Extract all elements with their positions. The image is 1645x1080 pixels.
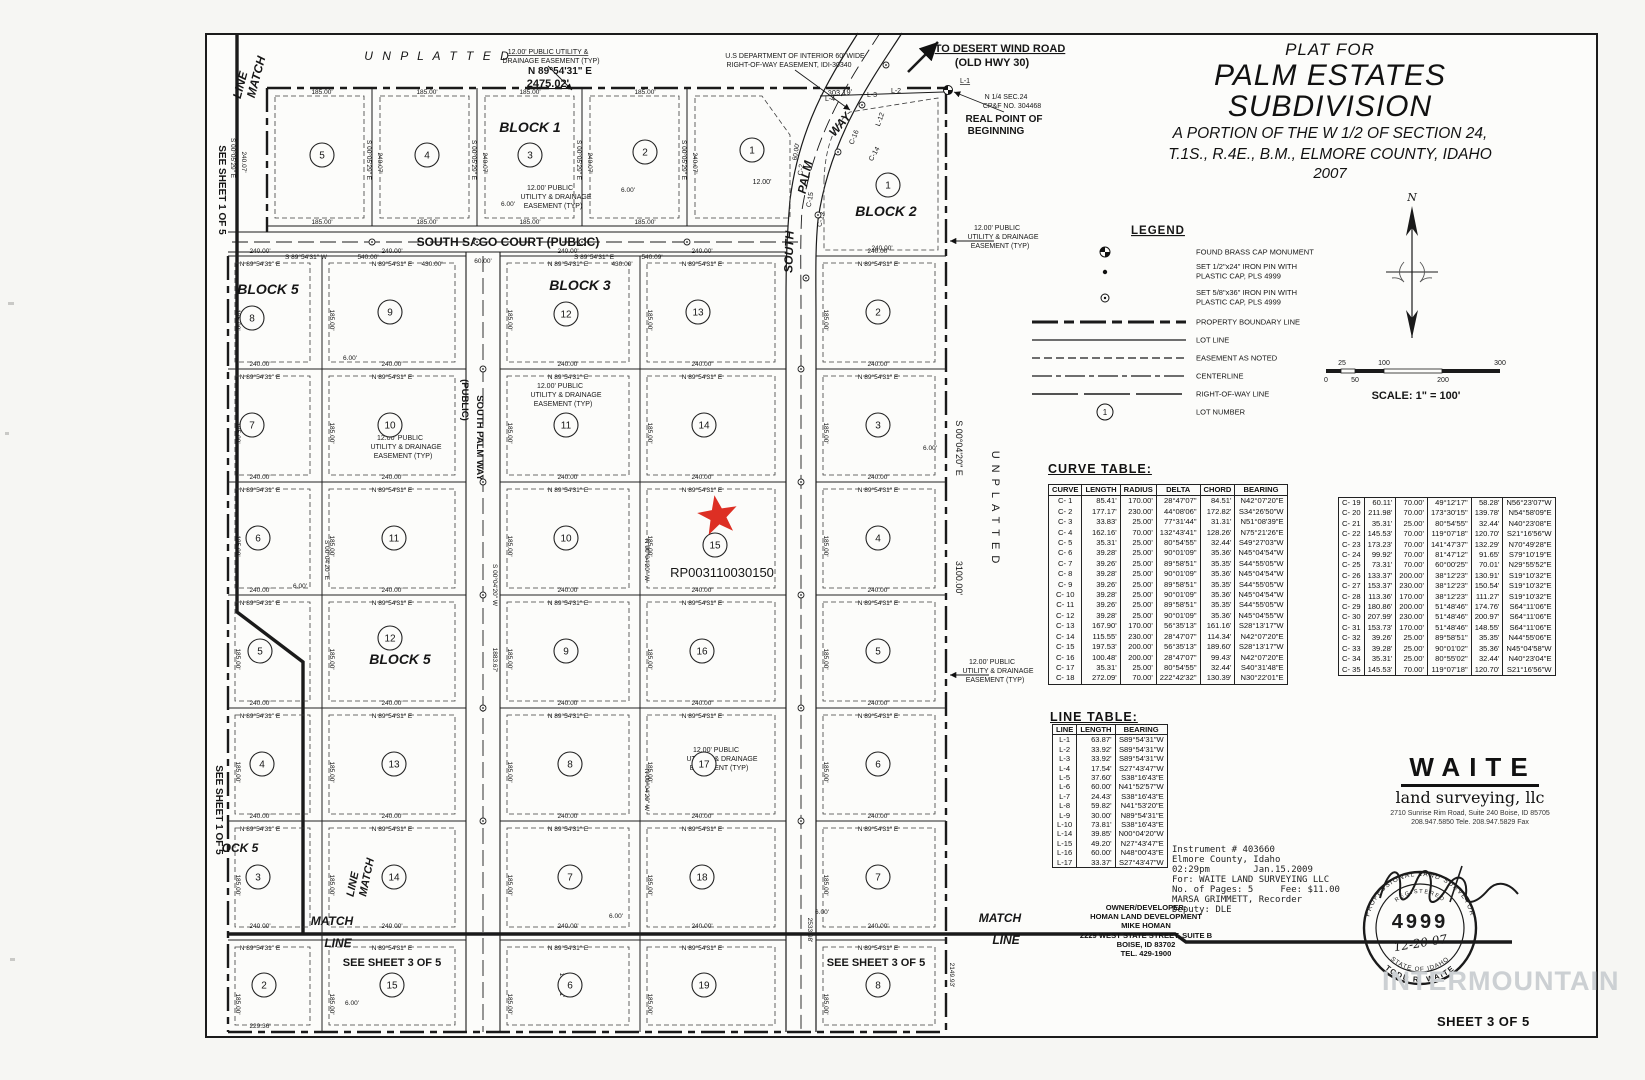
table-cell: 148.55' [1471,623,1503,633]
dimension-label: 240.07' [481,152,488,173]
table-cell: 174.76' [1471,602,1503,612]
table-cell: 38°12'23" [1427,581,1471,591]
table-cell: L-9 [1053,811,1077,820]
table-cell: 211.98' [1364,508,1396,518]
lot-number: 3 [527,151,533,162]
lot-number: 7 [875,873,881,884]
table-cell: 60.11' [1364,498,1396,509]
legend-label: RIGHT-OF-WAY LINE [1196,390,1269,399]
iron-pin-icon [861,104,863,106]
table-cell: S19°10'32"E [1503,592,1555,602]
lot-number: 10 [560,534,572,545]
table-cell: 189.60' [1200,642,1235,652]
column-header: BEARING [1235,485,1287,496]
table-cell: 230.00' [1120,507,1156,517]
lot-number: 6 [567,981,573,992]
table-cell: L-7 [1053,792,1077,801]
lot-number: 10 [384,421,396,432]
table-cell: 25.00' [1396,654,1428,664]
table-cell: 170.00' [1120,496,1156,507]
map-label: S 89°54'31" W [285,253,328,261]
table-cell: 56°35'13" [1156,642,1200,652]
subdivision-name-line1: PALM ESTATES [1095,60,1565,91]
table-cell: L-8 [1053,801,1077,810]
table-row: C- 27153.37'230.00'38°12'23"150.54'S19°1… [1339,581,1556,591]
stamp-date: 12-20-07 [1393,932,1449,954]
table-row: C- 3435.31'25.00'80°55'02"32.44'N40°23'0… [1339,654,1556,664]
table-cell: 222°42'32" [1156,673,1200,684]
table-row: C- 18272.09'70.00'222°42'32"130.39'N30°2… [1049,673,1288,684]
recording-line: For: WAITE LAND SURVEYING LLC [1172,875,1340,885]
table-cell: 33.92' [1077,754,1115,763]
table-cell: S89°54'31"W [1115,735,1167,745]
table-cell: N48°00'43"E [1115,848,1167,857]
table-cell: C- 2 [1049,507,1082,517]
map-label: SOUTH PALM WAY [474,395,485,481]
table-row: C- 333.83'25.00'77°31'44"31.31'N51°08'39… [1049,517,1288,527]
map-label: 430.00' [421,261,442,268]
table-cell: 145.53' [1364,665,1396,676]
dimension-label: 185.00' [416,219,437,226]
table-cell: 114.34' [1200,632,1235,642]
column-header: LENGTH [1082,485,1120,496]
table-cell: S38°16'43"E [1115,820,1167,829]
column-header: CURVE [1049,485,1082,496]
map-label: EASEMENT (TYP) [971,243,1030,250]
table-cell: 73.81' [1077,820,1115,829]
bearing-label: N 89°54'31" E [858,825,899,833]
table-cell: N44°55'06"E [1503,633,1555,643]
table-cell: 39.26' [1364,633,1396,643]
table-cell: 39.28' [1364,644,1396,654]
map-label: EASEMENT (TYP) [966,677,1025,684]
map-label: UTILITY & DRAINAGE [520,194,591,201]
table-row: L-660.00'N41°52'57"W [1053,782,1168,791]
map-label: 540.09' [641,254,662,261]
table-cell: S28°13'17"W [1235,621,1287,631]
table-cell: L-6 [1053,782,1077,791]
table-cell: L-15 [1053,839,1077,848]
table-cell: 25.00' [1120,611,1156,621]
lot-number: 12 [560,310,572,321]
table-cell: 89°58'51" [1156,580,1200,590]
table-cell: 33.37' [1077,858,1115,868]
map-label: (PUBLIC) [459,379,470,421]
map-label: S 89°54'31" E [574,253,615,261]
table-cell: N45°04'55"W [1235,611,1287,621]
table-row: L-417.54'S27°43'47"W [1053,764,1168,773]
bearing-label: N 89°54'31" E [240,486,281,494]
table-row: L-859.82'N41°53'20"E [1053,801,1168,810]
iron-pin-icon [885,64,887,66]
table-row: L-1733.37'S27°43'47"W [1053,858,1168,868]
dimension-label: 240.00' [249,700,270,707]
table-cell: 51°48'46" [1427,623,1471,633]
table-cell: 200.00' [1396,602,1428,612]
map-label: SEE SHEET 1 OF 5 [216,145,227,235]
table-cell: 39.26' [1082,559,1120,569]
table-cell: S89°54'31"W [1115,754,1167,763]
table-cell: 70.00' [1396,529,1428,539]
table-cell: 73.31' [1364,560,1396,570]
table-cell: 60.00' [1077,848,1115,857]
map-label: EASEMENT (TYP) [524,203,583,210]
table-cell: 119°07'18" [1427,665,1471,676]
table-cell: C- 29 [1339,602,1365,612]
table-cell: 60°00'25" [1427,560,1471,570]
dimension-label: 240.00' [867,923,888,930]
table-cell: 141°47'37" [1427,540,1471,550]
table-cell: N45°04'58"W [1503,644,1555,654]
bearing-label: N 89°54'31" E [858,712,899,720]
map-label: BLOCK 3 [549,277,611,293]
table-cell: 170.00' [1396,592,1428,602]
table-cell: 51°48'46" [1427,602,1471,612]
iron-pin-icon [476,241,478,243]
scale-bar [1326,369,1500,373]
table-cell: 32.44' [1471,654,1503,664]
table-cell: 132.29' [1471,540,1503,550]
map-label: DRAINAGE EASEMENT (TYP) [502,58,599,65]
table-cell: N42°07'20"E [1235,496,1287,507]
table-cell: 35.36' [1200,548,1235,558]
iron-pin-icon [482,594,484,596]
table-row: C- 1960.11'70.00'49°12'17"58.28'N56°23'0… [1339,498,1556,509]
table-cell: 153.73' [1364,623,1396,633]
table-cell: C- 10 [1049,590,1082,600]
table-header-row: CURVELENGTHRADIUSDELTACHORDBEARING [1049,485,1288,496]
table-cell: 200.00' [1396,571,1428,581]
map-label: 1883.67' [491,648,498,673]
table-cell: 39.28' [1082,569,1120,579]
table-cell: 139.78' [1471,508,1503,518]
dimension-label: 240.00' [691,813,712,820]
table-row: C- 2499.92'70.00'81°47'12"91.65'S79°10'1… [1339,550,1556,560]
owner-line: OWNER/DEVELOPER: [1056,903,1236,912]
lot-number: 8 [567,760,573,771]
dimension-label: 240.00' [249,474,270,481]
table-cell: 49.20' [1077,839,1115,848]
dimension-label: 240.00' [867,474,888,481]
table-row: C- 2135.31'25.00'80°54'55"32.44'N40°23'0… [1339,519,1556,529]
map-label: BLOCK 2 [855,203,917,219]
map-label: CP&F NO. 304468 [983,103,1041,110]
table-cell: L-16 [1053,848,1077,857]
table-cell: C- 8 [1049,569,1082,579]
lot-number: 11 [561,421,572,432]
north-arrow: N [1386,191,1438,338]
lot-number: 4 [424,151,430,162]
bearing-label: N 89°54'31" E [372,712,413,720]
table-cell: 70.00' [1396,540,1428,550]
table-cell: 32.44' [1471,519,1503,529]
table-cell: 89°58'51" [1427,633,1471,643]
iron-pin-icon [800,594,802,596]
scale-tick: 50 [1351,377,1359,384]
table-cell: C- 11 [1049,600,1082,610]
table-cell: 25.00' [1396,644,1428,654]
dimension-label: 240.00' [691,587,712,594]
iron-pin-icon [371,241,373,243]
table-cell: 25.00' [1396,633,1428,643]
table-cell: 35.31' [1364,519,1396,529]
table-cell: L-4 [1053,764,1077,773]
column-header: BEARING [1115,725,1167,735]
map-label: BEGINNING [968,126,1025,137]
table-cell: N70°49'28"E [1503,540,1555,550]
table-cell: 80°54'55" [1156,538,1200,548]
bearing-label: S 00°05'29" E [680,140,688,181]
iron-pin-icon [800,481,802,483]
table-cell: C- 3 [1049,517,1082,527]
bearing-label: N 89°54'31" E [548,486,589,494]
table-row: C- 13167.90'170.00'56°35'13"161.16'S28°1… [1049,621,1288,631]
bearing-label: N 89°54'31" E [682,944,723,952]
table-cell: 200.00' [1120,653,1156,663]
dimension-label: 240.00' [381,361,402,368]
desert-wind-arrow [908,42,938,72]
lot-number: 19 [698,981,710,992]
table-cell: 25.00' [1120,569,1156,579]
table-cell: 35.31' [1082,663,1120,673]
map-label: 3100.00' [954,561,964,596]
table-cell: 39.85' [1077,829,1115,838]
table-cell: S19°10'32"E [1503,571,1555,581]
table-row: L-333.92'S89°54'31"W [1053,754,1168,763]
table-cell: 173.23' [1364,540,1396,550]
subdivision-name-line2: SUBDIVISION [1095,91,1565,122]
surveyor-block: WAITE land surveying, llc 2710 Sunrise R… [1330,752,1610,827]
table-cell: C- 18 [1049,673,1082,684]
table-row: C- 26133.37'200.00'38°12'23"130.91'S19°1… [1339,571,1556,581]
table-cell: 35.31' [1082,538,1120,548]
table-cell: 25.00' [1120,538,1156,548]
legend-label: EASEMENT AS NOTED [1196,354,1278,363]
dimension-label: 185.00' [519,89,540,96]
plat-year: 2007 [1095,165,1565,182]
bearing-label: N 89°54'31" E [858,260,899,268]
dimension-label: 240.00' [557,700,578,707]
table-cell: N40°23'08"E [1503,519,1555,529]
subtitle-line2: T.1S., R.4E., B.M., ELMORE COUNTY, IDAHO [1095,146,1565,164]
table-cell: C- 25 [1339,560,1365,570]
bearing-label: N 89°54'31" E [858,944,899,952]
table-cell: 230.00' [1396,581,1428,591]
table-cell: 272.09' [1082,673,1120,684]
table-cell: 25.00' [1120,600,1156,610]
iron-pin-icon [482,481,484,483]
table-cell: S64°11'06"E [1503,623,1555,633]
lot-number: 3 [875,421,881,432]
table-cell: N45°04'54"W [1235,590,1287,600]
table-cell: S89°54'31"W [1115,745,1167,754]
map-label: SEE SHEET 3 OF 5 [343,957,441,969]
table-cell: S64°11'06"E [1503,612,1555,622]
table-cell: 70.00' [1396,508,1428,518]
bearing-label: N 89°54'31" E [372,486,413,494]
dimension-label: 240.00' [867,361,888,368]
table-row: C- 29180.86'200.00'51°48'46"174.76'S64°1… [1339,602,1556,612]
table-cell: 17.54' [1077,764,1115,773]
bearing-label: S 00°05'29" E [575,140,583,181]
iron-pin-icon [482,820,484,822]
scale-tick: 0 [1324,377,1328,384]
bearing-label: N 89°54'31" E [548,373,589,381]
map-label: SEE SHEET 1 OF 5 [213,765,224,855]
table-cell: L-3 [1053,754,1077,763]
north-label: N [1406,191,1417,204]
dimension-label: 240.07' [691,152,698,173]
table-cell: N42°07'20"E [1235,653,1287,663]
map-label: 240.07' [240,151,247,172]
table-row: C- 3239.26'25.00'89°58'51"35.35'N44°55'0… [1339,633,1556,643]
easement-line [647,263,775,362]
table-cell: 150.54' [1471,581,1503,591]
owner-developer-block: OWNER/DEVELOPER:HOMAN LAND DEVELOPMENTMI… [1056,903,1236,958]
table-cell: 28°47'07" [1156,496,1200,507]
table-cell: 81°47'12" [1427,550,1471,560]
map-label: N 89°54'31" E [528,66,592,77]
table-row: C- 1735.31'25.00'80°54'55"32.44'S40°31'4… [1049,663,1288,673]
map-label: 6.00' [609,913,623,920]
table-cell: C- 7 [1049,559,1082,569]
table-cell: 90°01'09" [1156,548,1200,558]
table-cell: N89°54'31"E [1115,811,1167,820]
table-cell: 162.16' [1082,528,1120,538]
dimension-label: 240.00' [249,361,270,368]
table-row: C- 2177.17'230.00'44°08'06"172.82'S34°26… [1049,507,1288,517]
table-cell: 35.35' [1471,633,1503,643]
table-row: C- 2573.31'70.00'60°00'25"70.01'N29°55'5… [1339,560,1556,570]
table-row: C- 939.26'25.00'89°58'51"35.35'S44°55'05… [1049,580,1288,590]
dimension-label: 240.00' [381,813,402,820]
table-cell: C- 28 [1339,592,1365,602]
lot-number: 15 [386,981,398,992]
legend-label: FOUND BRASS CAP MONUMENT [1196,248,1314,257]
map-label: 6.00' [621,187,635,194]
column-header: RADIUS [1120,485,1156,496]
iron-pin-icon [837,151,839,153]
table-cell: S21°16'56"W [1503,665,1555,676]
table-cell: 133.37' [1364,571,1396,581]
table-cell: C- 1 [1049,496,1082,507]
map-label: (OLD HWY 30) [955,57,1030,69]
table-cell: 63.87' [1077,735,1115,745]
table-cell: N75°21'26"E [1235,528,1287,538]
bearing-label: N 89°54'31" E [240,373,281,381]
dimension-label: 240.00' [249,587,270,594]
table-cell: C- 31 [1339,623,1365,633]
bearing-label: N 89°54'31" E [682,712,723,720]
map-label: L-2 [891,88,901,95]
table-cell: 25.00' [1120,517,1156,527]
iron-pin-icon [1104,297,1106,299]
table-row: C- 28113.36'170.00'38°12'23"111.27'S19°1… [1339,592,1556,602]
table-cell: C- 9 [1049,580,1082,590]
legend-label: LOT NUMBER [1196,408,1246,417]
dimension-label: 240.00' [249,248,270,255]
map-label: N 1/4 SEC.24 [985,94,1028,101]
table-row: L-163.87'S89°54'31"W [1053,735,1168,745]
table-row: L-537.60'S38°16'43"E [1053,773,1168,782]
lot-number: 2 [261,981,267,992]
table-cell: C- 23 [1339,540,1365,550]
table-cell: C- 12 [1049,611,1082,621]
bearing-label: N 89°54'31" E [682,599,723,607]
table-cell: N40°23'04"E [1503,654,1555,664]
table-cell: 128.26' [1200,528,1235,538]
table-cell: 25.00' [1120,663,1156,673]
table-cell: 173°30'15" [1427,508,1471,518]
table-cell: 38°12'23" [1427,571,1471,581]
map-label: MATCH [311,914,354,928]
table-cell: 70.00' [1396,498,1428,509]
lot-number: 4 [259,760,265,771]
table-cell: L-5 [1053,773,1077,782]
table-cell: 39.26' [1082,580,1120,590]
table-row: C- 3339.28'25.00'90°01'02"35.36'N45°04'5… [1339,644,1556,654]
table-cell: 120.70' [1471,529,1503,539]
table-cell: N29°55'52"E [1503,560,1555,570]
dimension-label: 185.00' [311,89,332,96]
lot-number: 7 [249,421,255,432]
map-label: LINE [992,933,1020,947]
subtitle-line1: A PORTION OF THE W 1/2 OF SECTION 24, [1095,125,1565,143]
legend-label: CENTERLINE [1196,372,1244,381]
table-cell: 90°01'09" [1156,611,1200,621]
table-cell: 39.26' [1082,600,1120,610]
table-cell: 35.36' [1200,569,1235,579]
table-cell: 119°07'18" [1427,529,1471,539]
bearing-label: N 89°54'31" E [240,825,281,833]
table-cell: 89°58'51" [1156,559,1200,569]
map-label: 12.00' PUBLIC [974,225,1020,232]
map-label: WAY [826,109,854,139]
bearing-label: N 89°54'31" E [372,373,413,381]
table-cell: 70.00' [1120,673,1156,684]
table-header-row: LINELENGTHBEARING [1053,725,1168,735]
lot-number: 7 [567,873,573,884]
table-cell: 85.41' [1082,496,1120,507]
table-cell: 25.00' [1396,519,1428,529]
surveyor-tagline: land surveying, llc [1330,788,1610,807]
table-cell: 90°01'02" [1427,644,1471,654]
map-label: OCK 5 [222,841,259,855]
table-cell: 25.00' [1120,580,1156,590]
sheet-number-label: SHEET 3 OF 5 [1437,1014,1530,1029]
dimension-label: 240.00' [381,700,402,707]
recording-line: Elmore County, Idaho [1172,855,1340,865]
map-label: C-16 [849,129,861,146]
lot-number: 6 [875,760,881,771]
table-cell: 80°54'55" [1156,663,1200,673]
table-cell: L-10 [1053,820,1077,829]
table-cell: 177.17' [1082,507,1120,517]
legend-label: LOT LINE [1196,336,1229,345]
bearing-label: S 00°05'29" E [365,140,373,181]
table-cell: N30°22'01"E [1235,673,1287,684]
table-cell: C- 20 [1339,508,1365,518]
table-cell: 32.44' [1200,663,1235,673]
dimension-label: 240.00' [557,361,578,368]
column-header: DELTA [1156,485,1200,496]
table-cell: 170.00' [1396,623,1428,633]
table-cell: 89°58'51" [1156,600,1200,610]
iron-pin-icon [581,241,583,243]
dimension-label: 240.00' [557,923,578,930]
map-label: UTILITY & DRAINAGE [962,668,1033,675]
table-cell: 35.36' [1200,590,1235,600]
